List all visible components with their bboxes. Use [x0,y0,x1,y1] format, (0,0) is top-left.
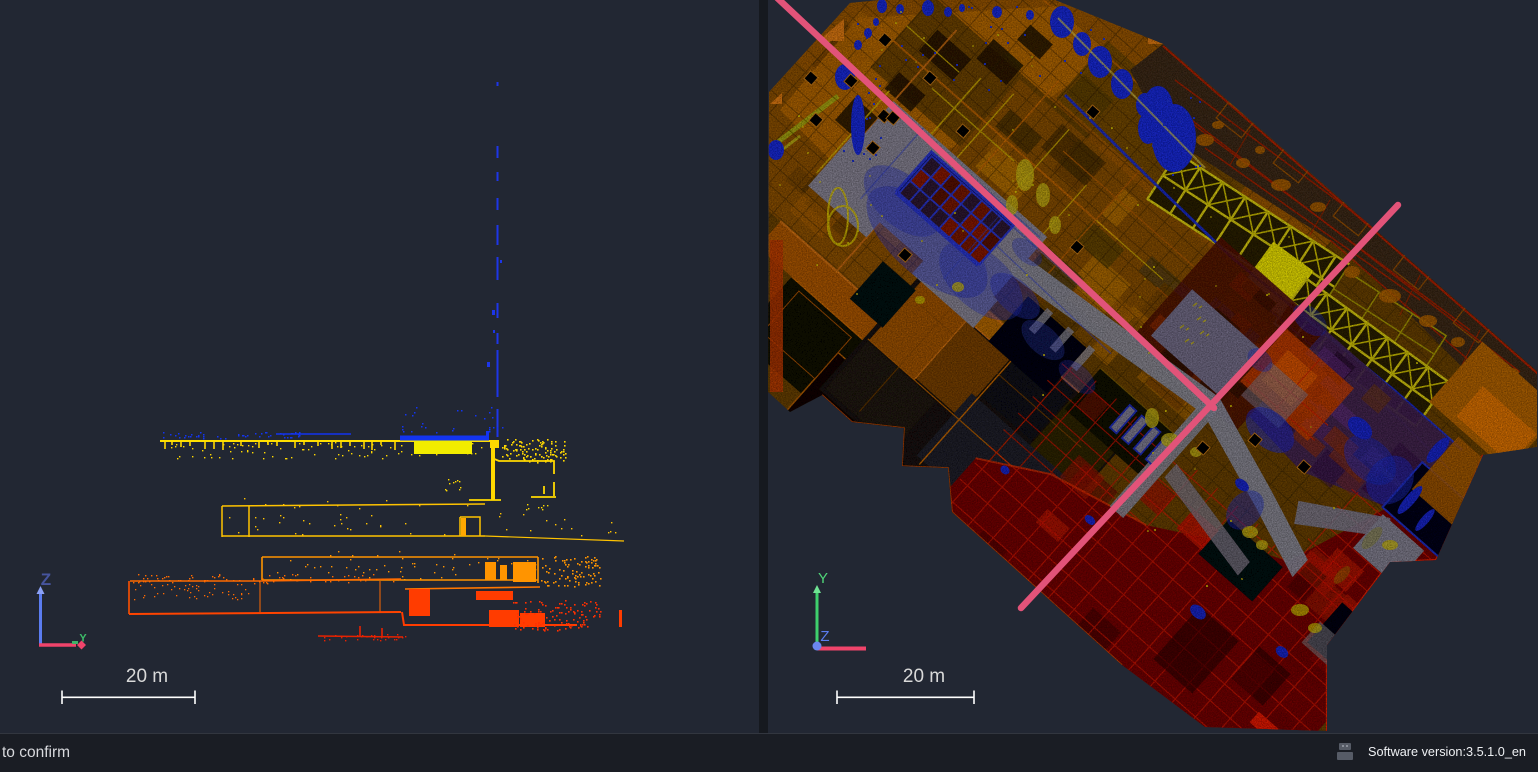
svg-text:Z: Z [820,628,829,645]
svg-text:20 m: 20 m [903,666,945,687]
svg-text:20 m: 20 m [126,666,168,687]
svg-text:Z: Z [41,570,51,589]
svg-text:Y: Y [79,633,87,645]
svg-text:Y: Y [818,570,828,587]
